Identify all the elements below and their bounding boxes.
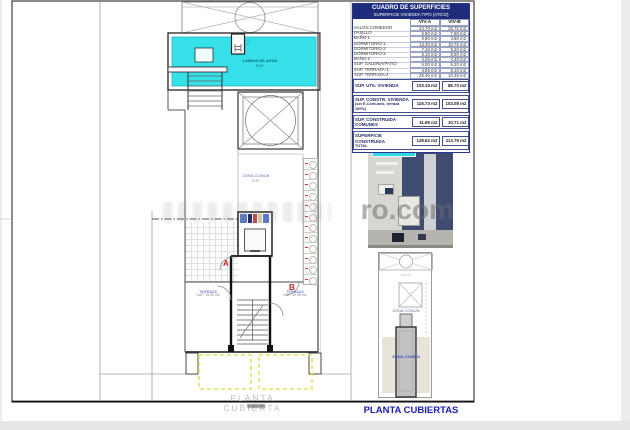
door-marker-a: A bbox=[223, 259, 229, 268]
page-edge-bottom bbox=[0, 421, 630, 430]
watermark-faint-band bbox=[163, 202, 331, 222]
total-value-a: 116.73 m2 bbox=[412, 99, 440, 109]
zona-comun-label: ZONA COMUN SUP: bbox=[234, 174, 278, 183]
total-label: SUP. CONSTR. VIVIENDA(sin E.Comunes, ter… bbox=[354, 96, 411, 112]
pool-ladder bbox=[232, 34, 250, 54]
pool-label: LAMINA DE AGUA SUP: bbox=[228, 59, 292, 68]
watermark-text: ro.com bbox=[330, 194, 454, 226]
row-label: SUP. TERRAZA-2 bbox=[353, 72, 410, 79]
key-plan-lines bbox=[379, 253, 433, 399]
row-value-b: 10.45 m2 bbox=[440, 72, 469, 79]
key-plan: ZONA COMUN ZONA COMUN bbox=[378, 252, 432, 398]
total-value-b: 103.08 m2 bbox=[442, 99, 469, 109]
roof-render-photo bbox=[368, 138, 453, 248]
table-total-row: SUPERFICIE CONSTRUIDATOTAL128.62 m2113.7… bbox=[353, 131, 469, 150]
awning-outlines bbox=[199, 355, 312, 389]
photo-street-dark-1 bbox=[392, 233, 404, 242]
total-value-a: 103.10 m2 bbox=[412, 81, 440, 91]
top-structure bbox=[182, 2, 318, 33]
table-row: SUP. TERRAZA-225.40 m210.45 m2 bbox=[353, 72, 469, 77]
pool-step-box bbox=[195, 48, 213, 62]
total-label: SUP. UTIL VIVIENDA bbox=[354, 82, 411, 89]
skylight bbox=[238, 92, 303, 149]
roof-access-stair bbox=[168, 72, 222, 110]
surface-table-title: CUADRO DE SUPERFICIES bbox=[353, 5, 469, 12]
terraza-left-label: TERRAZA SUP: 25.40 m2 bbox=[191, 290, 225, 298]
surface-table-rows: SALON COMEDOR24.70 m226.70 m2PASILLO6.90… bbox=[353, 25, 469, 77]
table-total-row: SUP. CONSTRUIDA COMUNES11.89 m210.71 m2 bbox=[353, 115, 469, 129]
key-plan-stair-label: ZONA COMUN bbox=[387, 355, 425, 359]
level-cell bbox=[304, 243, 317, 254]
plan-caption: PLANTA CUBIERTA bbox=[205, 393, 300, 413]
total-value-a: 11.89 m2 bbox=[412, 117, 440, 127]
scale-text-smudge bbox=[247, 404, 265, 408]
total-label: SUP. CONSTRUIDA COMUNES bbox=[354, 116, 411, 128]
surface-table-subtitle: SUPERFICIE VIVIENDA TIPO (ATICO) bbox=[353, 12, 469, 17]
door-marker-b: B bbox=[289, 283, 295, 292]
surface-table: CUADRO DE SUPERFICIES SUPERFICIE VIVIEND… bbox=[352, 3, 470, 153]
photo-street bbox=[368, 230, 453, 246]
level-cell bbox=[304, 180, 317, 191]
total-value-b: 10.71 m2 bbox=[442, 117, 469, 127]
table-total-row: SUP. UTIL VIVIENDA103.10 m286.70 m2 bbox=[353, 79, 469, 93]
level-cell bbox=[304, 191, 317, 202]
surface-table-totals: SUP. UTIL VIVIENDA103.10 m286.70 m2SUP. … bbox=[353, 79, 469, 152]
drawing-sheet: ZONA COMUN ZONA COMUN bbox=[0, 0, 630, 430]
level-cell bbox=[304, 222, 317, 233]
sheet-title: PLANTA CUBIERTAS bbox=[352, 405, 470, 416]
row-value-a: 25.40 m2 bbox=[410, 72, 440, 79]
level-cell bbox=[304, 264, 317, 275]
level-cell bbox=[304, 254, 317, 265]
photo-bottom-band bbox=[368, 245, 453, 248]
total-value-b: 113.79 m2 bbox=[442, 136, 469, 146]
photo-street-dark-2 bbox=[418, 234, 426, 240]
level-cell bbox=[304, 233, 317, 244]
photo-wall-2 bbox=[376, 171, 394, 174]
photo-wall-1 bbox=[376, 162, 398, 165]
pool-bench bbox=[168, 67, 227, 72]
level-cell bbox=[304, 159, 317, 170]
page-edge-right bbox=[621, 0, 630, 430]
total-label: SUPERFICIE CONSTRUIDATOTAL bbox=[354, 132, 411, 149]
level-cell bbox=[304, 170, 317, 181]
surface-table-titlebar: CUADRO DE SUPERFICIES SUPERFICIE VIVIEND… bbox=[353, 4, 469, 19]
key-plan-zona-comun-label: ZONA COMUN bbox=[385, 309, 427, 313]
table-total-row: SUP. CONSTR. VIVIENDA(sin E.Comunes, ter… bbox=[353, 95, 469, 113]
terraza-right-label: TERRAZA SUP: 10.45 m2 bbox=[278, 290, 312, 298]
staircase bbox=[237, 300, 268, 344]
page-edge-left bbox=[0, 0, 2, 430]
total-value-b: 86.70 m2 bbox=[442, 81, 469, 91]
tiled-deck bbox=[185, 222, 238, 282]
total-value-a: 128.62 m2 bbox=[412, 136, 440, 146]
level-cell bbox=[304, 275, 317, 285]
